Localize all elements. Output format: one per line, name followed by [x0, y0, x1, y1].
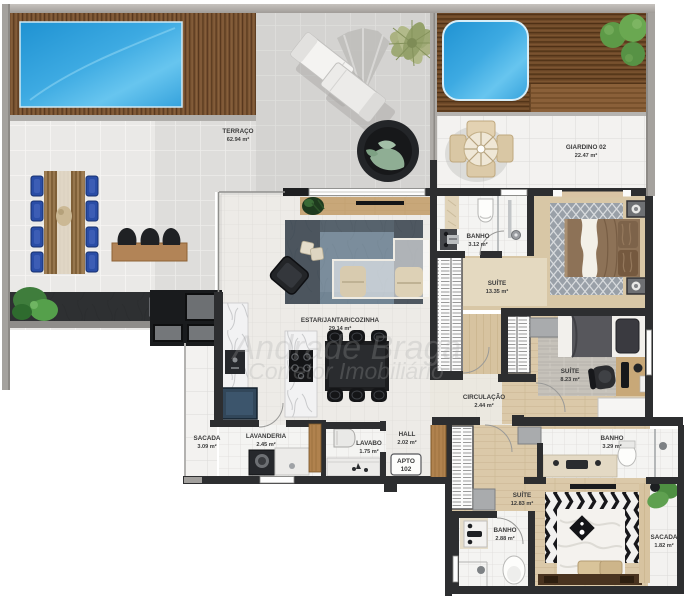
svg-text:GIARDINO 02: GIARDINO 02: [566, 144, 607, 151]
svg-text:SACADA: SACADA: [194, 435, 221, 442]
svg-text:ESTAR/JANTAR/COZINHA: ESTAR/JANTAR/COZINHA: [301, 317, 380, 324]
svg-text:Corretor Imobiliário: Corretor Imobiliário: [248, 358, 444, 384]
svg-text:2.45 m²: 2.45 m²: [256, 441, 275, 448]
svg-text:2.02 m²: 2.02 m²: [397, 439, 416, 446]
svg-text:HALL: HALL: [399, 431, 416, 438]
svg-text:29.14 m²: 29.14 m²: [329, 325, 352, 332]
svg-text:8.23 m²: 8.23 m²: [560, 376, 579, 383]
svg-text:1.75 m²: 1.75 m²: [359, 448, 378, 455]
svg-text:TERRAÇO: TERRAÇO: [222, 128, 253, 135]
svg-text:2.88 m²: 2.88 m²: [495, 535, 514, 542]
svg-text:3.09 m²: 3.09 m²: [197, 443, 216, 450]
svg-text:12.83 m²: 12.83 m²: [511, 500, 534, 507]
svg-text:SUÍTE: SUÍTE: [513, 490, 532, 499]
svg-text:102: 102: [401, 466, 412, 473]
svg-text:SACADA: SACADA: [651, 534, 678, 541]
svg-text:3.29 m²: 3.29 m²: [602, 443, 621, 450]
svg-text:SUÍTE: SUÍTE: [488, 278, 507, 287]
svg-text:SUÍTE: SUÍTE: [561, 366, 580, 375]
svg-text:3.12 m²: 3.12 m²: [468, 241, 487, 248]
svg-text:LAVANDERIA: LAVANDERIA: [246, 433, 287, 440]
svg-text:LAVABO: LAVABO: [356, 440, 382, 447]
svg-text:62.94 m²: 62.94 m²: [227, 136, 250, 143]
svg-text:13.35 m²: 13.35 m²: [486, 288, 509, 295]
svg-text:BANHO: BANHO: [600, 435, 623, 442]
svg-text:APTO: APTO: [397, 458, 415, 465]
svg-text:22.47 m²: 22.47 m²: [575, 152, 598, 159]
svg-text:BANHO: BANHO: [493, 527, 516, 534]
svg-text:2.44 m²: 2.44 m²: [474, 402, 493, 409]
svg-text:BANHO: BANHO: [466, 233, 489, 240]
svg-text:1.82 m²: 1.82 m²: [654, 542, 673, 549]
svg-text:CIRCULAÇÃO: CIRCULAÇÃO: [463, 392, 505, 401]
